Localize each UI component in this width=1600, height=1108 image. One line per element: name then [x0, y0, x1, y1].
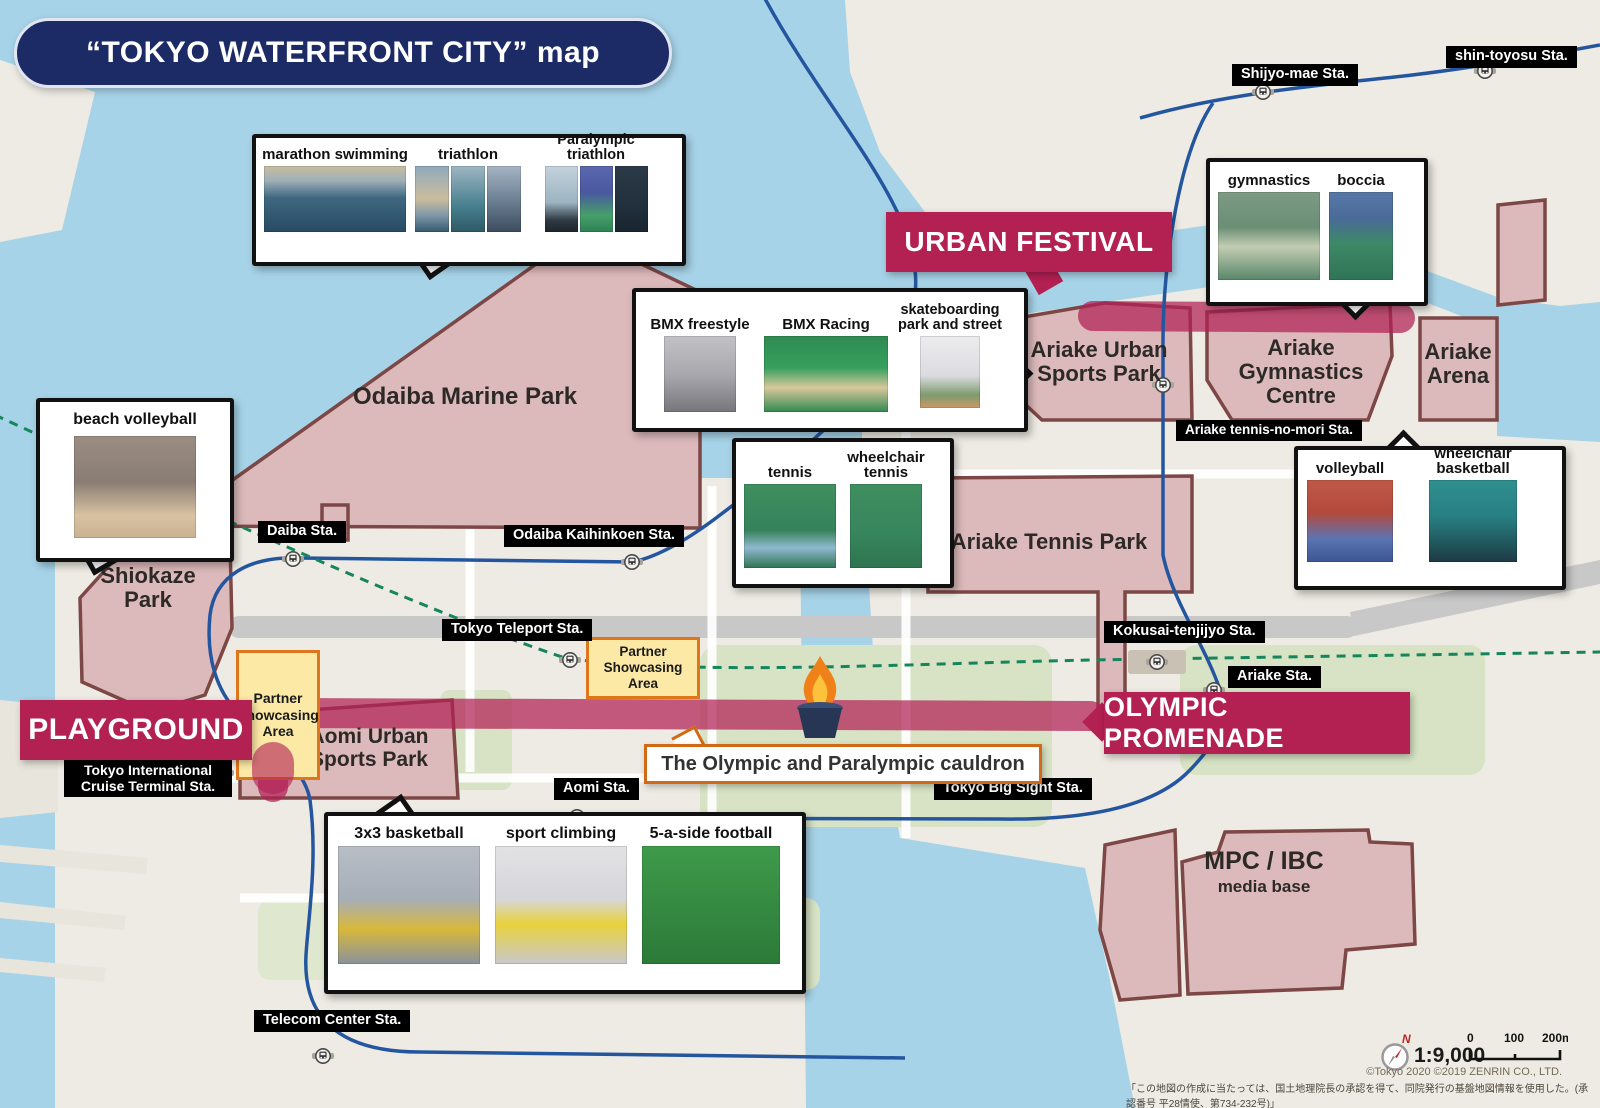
map-title-banner: “TOKYO WATERFRONT CITY” map [14, 18, 672, 88]
photo-triathlon-1 [415, 166, 449, 232]
photo-sport-climbing [495, 846, 627, 964]
promenade-blob [252, 742, 294, 794]
sport-label: 5-a-side football [650, 821, 773, 843]
photo-wheelchair-basketball [1429, 480, 1517, 562]
callout-aomi-urban-sports: 3x3 basketball sport climbing 5-a-side f… [324, 812, 806, 994]
venue-label-ariake-arena: Ariake Arena [1414, 340, 1502, 388]
venue-label-shiokaze-park: Shiokaze Park [92, 564, 204, 612]
sport-label: sport climbing [506, 821, 616, 843]
playground-label: PLAYGROUND [28, 713, 244, 747]
sport-label: skateboarding park and street [894, 297, 1006, 333]
station-aomi: Aomi Sta. [554, 778, 639, 800]
station-tokyo-teleport: Tokyo Teleport Sta. [442, 619, 592, 641]
venue-label-ariake-urban-sports-park: Ariake Urban Sports Park [1018, 338, 1180, 386]
photo-bmx-racing [764, 336, 888, 412]
photo-gymnastics [1218, 192, 1320, 280]
photo-marathon-swimming [264, 166, 406, 232]
sport-label: 3x3 basketball [354, 821, 463, 843]
flame-cauldron-icon [782, 652, 858, 744]
venue-unlabeled-north-area [1498, 200, 1545, 305]
station-shijyo-mae: Shijyo-mae Sta. [1232, 64, 1358, 86]
photo-volleyball [1307, 480, 1393, 562]
photo-beach-volleyball [74, 436, 196, 538]
venue-label-ariake-tennis-park: Ariake Tennis Park [940, 530, 1158, 554]
photo-5-a-side-football [642, 846, 780, 964]
olympic-promenade-banner: OLYMPIC PROMENADE [1104, 692, 1410, 754]
photo-paralympic-triathlon-3 [615, 166, 648, 232]
sport-label: wheelchair tennis [842, 447, 930, 481]
station-telecom-center: Telecom Center Sta. [254, 1010, 410, 1032]
photo-triathlon-3 [487, 166, 521, 232]
callout-ariake-arena: volleyball wheelchair basketball [1294, 446, 1566, 590]
venue-label-ariake-gymnastics-centre: Ariake Gymnastics Centre [1236, 336, 1366, 407]
cauldron-label-box: The Olympic and Paralympic cauldron [644, 744, 1042, 784]
license-note-jp: 「この地図の作成に当たっては、国土地理院長の承認を得て、同院発行の基盤地図情報を… [1126, 1080, 1596, 1108]
partner-showcasing-area-teleport: Partner Showcasing Area [586, 637, 700, 699]
copyright-line: ©Tokyo 2020 ©2019 ZENRIN CO., LTD. [1250, 1066, 1562, 1078]
sport-label: marathon swimming [262, 143, 408, 163]
callout-ariake-tennis-park: tennis wheelchair tennis [732, 438, 954, 588]
urban-festival-banner: URBAN FESTIVAL [886, 212, 1172, 272]
photo-boccia [1329, 192, 1393, 280]
scale-tick-100: 100 [1504, 1031, 1524, 1045]
station-tokyo-international-cruise-terminal: Tokyo International Cruise Terminal Sta. [64, 760, 232, 797]
photo-bmx-freestyle [664, 336, 736, 412]
photo-triathlon-2 [451, 166, 485, 232]
scale-bar: 0 100 200m [1462, 1028, 1568, 1066]
callout-ariake-urban-sports: BMX freestyle BMX Racing skateboarding p… [632, 288, 1028, 432]
photo-paralympic-triathlon-2 [580, 166, 613, 232]
olympic-promenade-label: OLYMPIC PROMENADE [1104, 692, 1410, 754]
urban-festival-label: URBAN FESTIVAL [904, 226, 1153, 258]
photo-3x3-basketball [338, 846, 480, 964]
station-ariake-tennis-no-mori: Ariake tennis-no-mori Sta. [1176, 420, 1362, 441]
venue-label-mpc-ibc: MPC / IBC [1190, 848, 1338, 875]
sport-label: beach volleyball [73, 407, 197, 429]
sport-label: BMX Racing [782, 297, 870, 333]
scale-tick-200: 200m [1542, 1031, 1568, 1045]
sport-label: boccia [1337, 167, 1385, 189]
station-shin-toyosu: shin-toyosu Sta. [1446, 46, 1577, 68]
station-daiba: Daiba Sta. [258, 521, 346, 543]
cauldron-label: The Olympic and Paralympic cauldron [661, 753, 1024, 776]
photo-tennis [744, 484, 836, 568]
station-odaiba-kaihinkoen: Odaiba Kaihinkoen Sta. [504, 525, 684, 547]
station-ariake: Ariake Sta. [1228, 666, 1321, 688]
tokyo-waterfront-city-map: “TOKYO WATERFRONT CITY” map marathon swi… [0, 0, 1600, 1108]
sport-label: Paralympic triathlon [528, 143, 664, 163]
map-title: “TOKYO WATERFRONT CITY” map [86, 36, 600, 70]
callout-shiokaze-park: beach volleyball [36, 398, 234, 562]
venue-label-media-base: media base [1190, 878, 1338, 896]
partner-showcasing-label: Partner Showcasing Area [589, 644, 697, 693]
sport-label: BMX freestyle [650, 297, 749, 333]
venue-mpc-ibc-west-area [1100, 830, 1180, 1000]
sport-label: tennis [768, 447, 812, 481]
station-kokusai-tenjijyo: Kokusai-tenjijyo Sta. [1104, 621, 1265, 643]
sport-label: volleyball [1316, 455, 1384, 477]
compass-north-label: N [1402, 1032, 1411, 1046]
scale-tick-0: 0 [1467, 1031, 1474, 1045]
sport-label: wheelchair basketball [1400, 455, 1546, 477]
playground-banner: PLAYGROUND [20, 700, 252, 760]
photo-skateboarding [920, 336, 980, 408]
photo-wheelchair-tennis [850, 484, 922, 568]
callout-odaiba-marine-park: marathon swimming triathlon Paralympic t… [252, 134, 686, 266]
callout-ariake-gymnastics: gymnastics boccia [1206, 158, 1428, 306]
sport-label: gymnastics [1228, 167, 1311, 189]
sport-label: triathlon [438, 143, 498, 163]
photo-paralympic-triathlon-1 [545, 166, 578, 232]
venue-label-odaiba-marine-park: Odaiba Marine Park [330, 384, 600, 410]
venue-label-aomi-urban-sports-park: Aomi Urban Sports Park [306, 726, 432, 771]
